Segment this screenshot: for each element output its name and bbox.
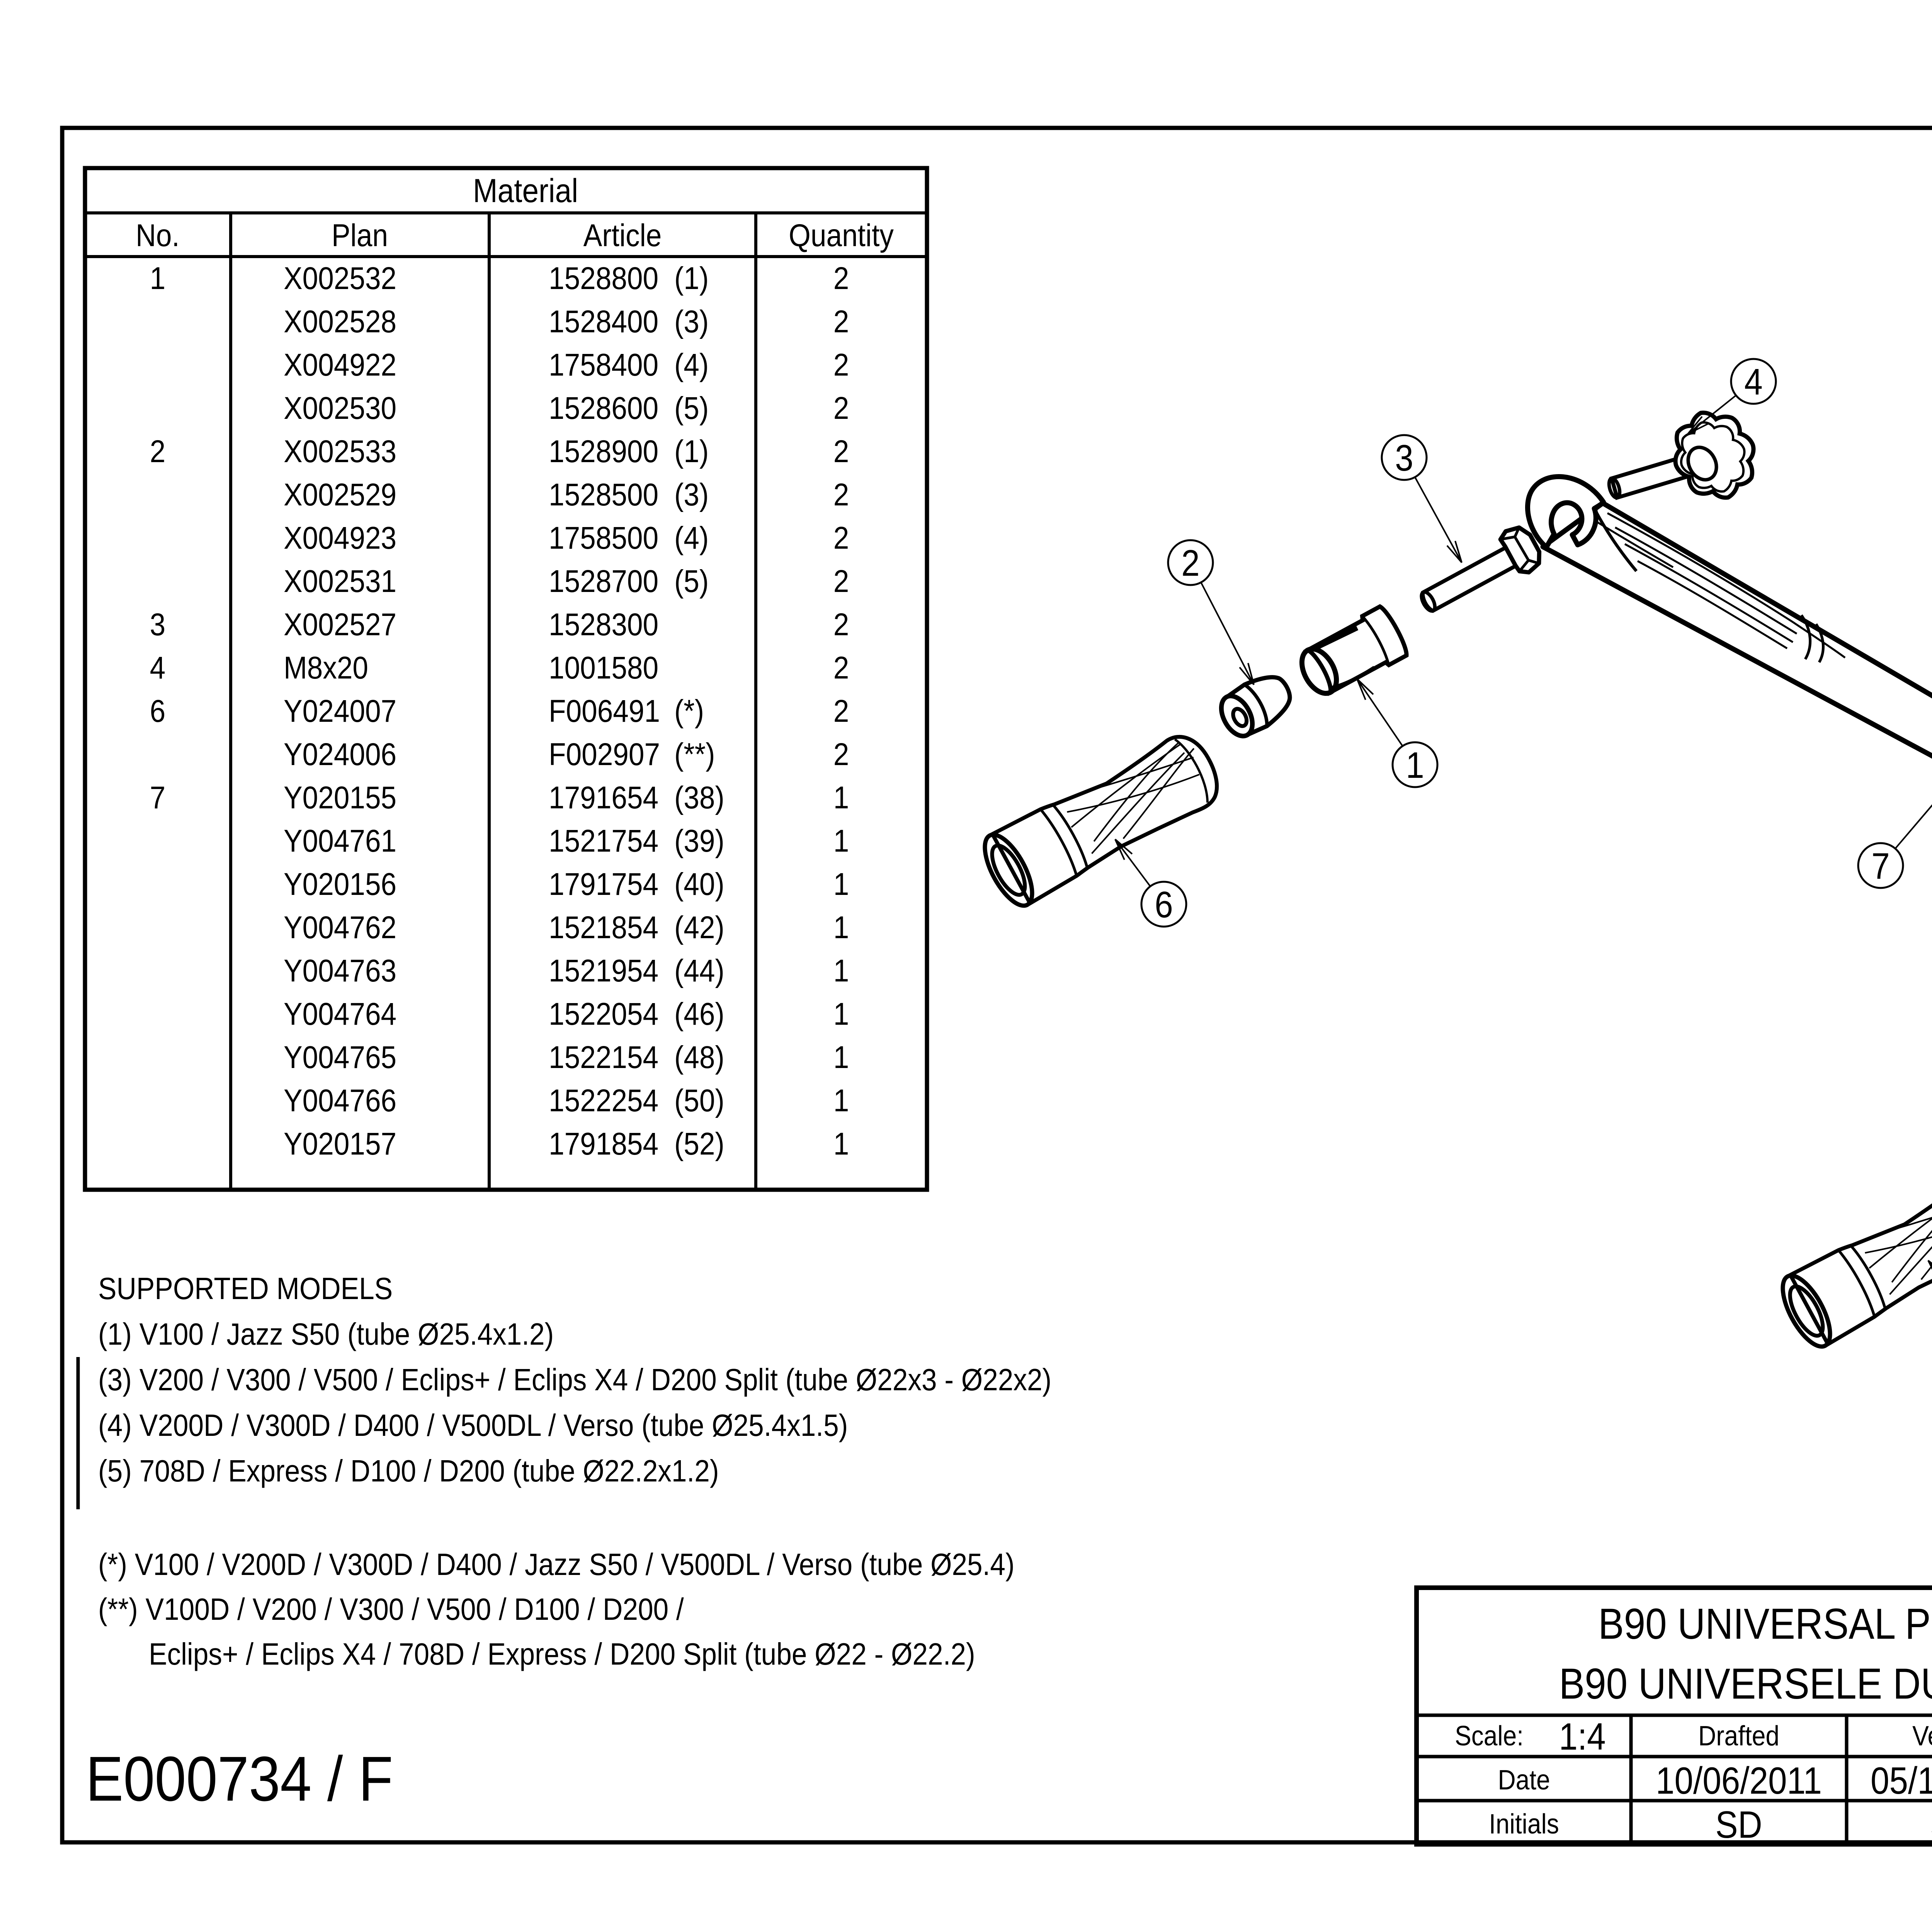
svg-text:(42): (42): [674, 910, 724, 945]
svg-text:2: 2: [833, 261, 849, 296]
svg-text:(52): (52): [674, 1126, 724, 1162]
svg-text:Y024006: Y024006: [284, 737, 396, 772]
svg-text:(44): (44): [674, 953, 724, 988]
svg-text:4: 4: [150, 650, 166, 685]
svg-text:Y004766: Y004766: [284, 1083, 396, 1118]
svg-text:(3) V200 / V300 / V500 / Eclip: (3) V200 / V300 / V500 / Eclips+ / Eclip…: [98, 1362, 1051, 1397]
svg-text:1: 1: [833, 910, 849, 945]
svg-text:X002531: X002531: [284, 564, 396, 599]
svg-text:Article: Article: [583, 218, 662, 253]
svg-text:1521854: 1521854: [549, 910, 658, 945]
svg-text:M8x20: M8x20: [284, 650, 368, 685]
svg-text:1758500: 1758500: [549, 520, 658, 556]
svg-text:3: 3: [150, 607, 166, 642]
svg-text:(**): (**): [674, 737, 715, 772]
svg-text:F002907: F002907: [549, 737, 660, 772]
svg-text:1791654: 1791654: [549, 780, 658, 815]
svg-text:1: 1: [833, 1126, 849, 1162]
svg-text:(38): (38): [674, 780, 724, 815]
svg-text:Initials: Initials: [1489, 1809, 1559, 1840]
svg-text:(39): (39): [674, 823, 724, 859]
svg-text:1791754: 1791754: [549, 867, 658, 902]
svg-text:1791854: 1791854: [549, 1126, 658, 1162]
svg-text:SD: SD: [1930, 1803, 1932, 1846]
svg-text:(50): (50): [674, 1083, 724, 1118]
svg-text:4: 4: [1744, 361, 1763, 403]
svg-text:(1): (1): [674, 261, 709, 296]
svg-text:05/11/2024: 05/11/2024: [1871, 1759, 1932, 1802]
svg-text:X002530: X002530: [284, 391, 396, 426]
svg-text:1: 1: [833, 867, 849, 902]
svg-text:1: 1: [833, 1083, 849, 1118]
svg-text:2: 2: [833, 391, 849, 426]
svg-text:7: 7: [1871, 845, 1890, 887]
svg-text:E000734 / F: E000734 / F: [86, 1743, 393, 1814]
svg-text:1521754: 1521754: [549, 823, 658, 859]
svg-text:X004923: X004923: [284, 520, 396, 556]
svg-text:6: 6: [1155, 884, 1173, 925]
svg-text:Drafted: Drafted: [1698, 1721, 1779, 1752]
svg-text:(46): (46): [674, 997, 724, 1032]
svg-text:2: 2: [833, 737, 849, 772]
svg-text:Eclips+ / Eclips X4 / 708D / E: Eclips+ / Eclips X4 / 708D / Express / D…: [149, 1637, 975, 1672]
svg-text:Y004763: Y004763: [284, 953, 396, 988]
svg-text:Y020155: Y020155: [284, 780, 396, 815]
svg-text:1: 1: [833, 997, 849, 1032]
svg-text:2: 2: [833, 694, 849, 729]
svg-text:1528300: 1528300: [549, 607, 658, 642]
svg-text:1528900: 1528900: [549, 434, 658, 469]
svg-text:1522054: 1522054: [549, 997, 658, 1032]
svg-text:2: 2: [833, 650, 849, 685]
svg-text:(5): (5): [674, 391, 709, 426]
svg-text:B90 UNIVERSAL PUSH BAR: B90 UNIVERSAL PUSH BAR: [1598, 1600, 1932, 1648]
svg-text:7: 7: [150, 780, 166, 815]
svg-text:3: 3: [1395, 437, 1413, 479]
svg-text:2: 2: [150, 434, 166, 469]
svg-text:Material: Material: [473, 172, 578, 209]
svg-text:Date: Date: [1498, 1765, 1550, 1796]
svg-text:X002529: X002529: [284, 477, 396, 512]
svg-text:(4): (4): [674, 520, 709, 556]
svg-text:(48): (48): [674, 1040, 724, 1075]
svg-text:1522154: 1522154: [549, 1040, 658, 1075]
svg-text:X004922: X004922: [284, 347, 396, 383]
svg-text:2: 2: [833, 347, 849, 383]
svg-text:Plan: Plan: [332, 218, 388, 253]
svg-text:Y004762: Y004762: [284, 910, 396, 945]
svg-text:2: 2: [1181, 543, 1200, 584]
svg-text:Scale:: Scale:: [1455, 1721, 1524, 1752]
svg-text:1528500: 1528500: [549, 477, 658, 512]
svg-text:10/06/2011: 10/06/2011: [1656, 1759, 1822, 1802]
svg-text:No.: No.: [136, 218, 180, 253]
svg-text:2: 2: [833, 477, 849, 512]
svg-text:SD: SD: [1715, 1803, 1762, 1846]
svg-text:1528700: 1528700: [549, 564, 658, 599]
svg-text:Y020156: Y020156: [284, 867, 396, 902]
svg-text:(4) V200D / V300D / D400 / V50: (4) V200D / V300D / D400 / V500DL / Vers…: [98, 1408, 848, 1443]
svg-text:F006491: F006491: [549, 694, 660, 729]
svg-text:(4): (4): [674, 347, 709, 383]
svg-text:1522254: 1522254: [549, 1083, 658, 1118]
svg-text:(3): (3): [674, 304, 709, 339]
svg-text:1:4: 1:4: [1559, 1715, 1605, 1758]
svg-text:2: 2: [833, 304, 849, 339]
svg-text:Y004761: Y004761: [284, 823, 396, 859]
svg-text:Quantity: Quantity: [789, 218, 894, 253]
svg-text:(1): (1): [674, 434, 709, 469]
svg-text:(1) V100 / Jazz S50 (tube Ø25.: (1) V100 / Jazz S50 (tube Ø25.4x1.2): [98, 1317, 554, 1352]
svg-text:Y020157: Y020157: [284, 1126, 396, 1162]
svg-text:Y004765: Y004765: [284, 1040, 396, 1075]
svg-text:1528800: 1528800: [549, 261, 658, 296]
svg-text:1521954: 1521954: [549, 953, 658, 988]
svg-text:Y024007: Y024007: [284, 694, 396, 729]
svg-text:(*) V100 / V200D / V300D / D40: (*) V100 / V200D / V300D / D400 / Jazz S…: [98, 1547, 1015, 1582]
svg-text:(**) V100D / V200 / V300 / V50: (**) V100D / V200 / V300 / V500 / D100 /…: [98, 1592, 684, 1627]
svg-text:Verified: Verified: [1912, 1721, 1932, 1752]
svg-text:B90 UNIVERSELE DUWBEUGEL: B90 UNIVERSELE DUWBEUGEL: [1559, 1660, 1932, 1708]
svg-text:6: 6: [150, 694, 166, 729]
svg-text:2: 2: [833, 564, 849, 599]
svg-text:2: 2: [833, 520, 849, 556]
svg-text:1528400: 1528400: [549, 304, 658, 339]
svg-text:X002527: X002527: [284, 607, 396, 642]
svg-text:(5): (5): [674, 564, 709, 599]
svg-text:1: 1: [833, 823, 849, 859]
svg-text:1001580: 1001580: [549, 650, 658, 685]
svg-text:1: 1: [833, 780, 849, 815]
svg-text:(*): (*): [674, 694, 704, 729]
svg-text:X002533: X002533: [284, 434, 396, 469]
svg-text:2: 2: [833, 434, 849, 469]
svg-text:SUPPORTED MODELS: SUPPORTED MODELS: [98, 1271, 393, 1306]
svg-text:1: 1: [1406, 745, 1424, 786]
svg-text:X002532: X002532: [284, 261, 396, 296]
svg-text:1: 1: [833, 953, 849, 988]
svg-text:1758400: 1758400: [549, 347, 658, 383]
svg-text:(40): (40): [674, 867, 724, 902]
svg-text:X002528: X002528: [284, 304, 396, 339]
svg-text:1: 1: [150, 261, 166, 296]
svg-text:(5) 708D / Express / D100 / D2: (5) 708D / Express / D100 / D200 (tube Ø…: [98, 1454, 719, 1488]
svg-text:(3): (3): [674, 477, 709, 512]
svg-text:Y004764: Y004764: [284, 997, 396, 1032]
svg-text:1: 1: [833, 1040, 849, 1075]
svg-text:1528600: 1528600: [549, 391, 658, 426]
svg-text:2: 2: [833, 607, 849, 642]
